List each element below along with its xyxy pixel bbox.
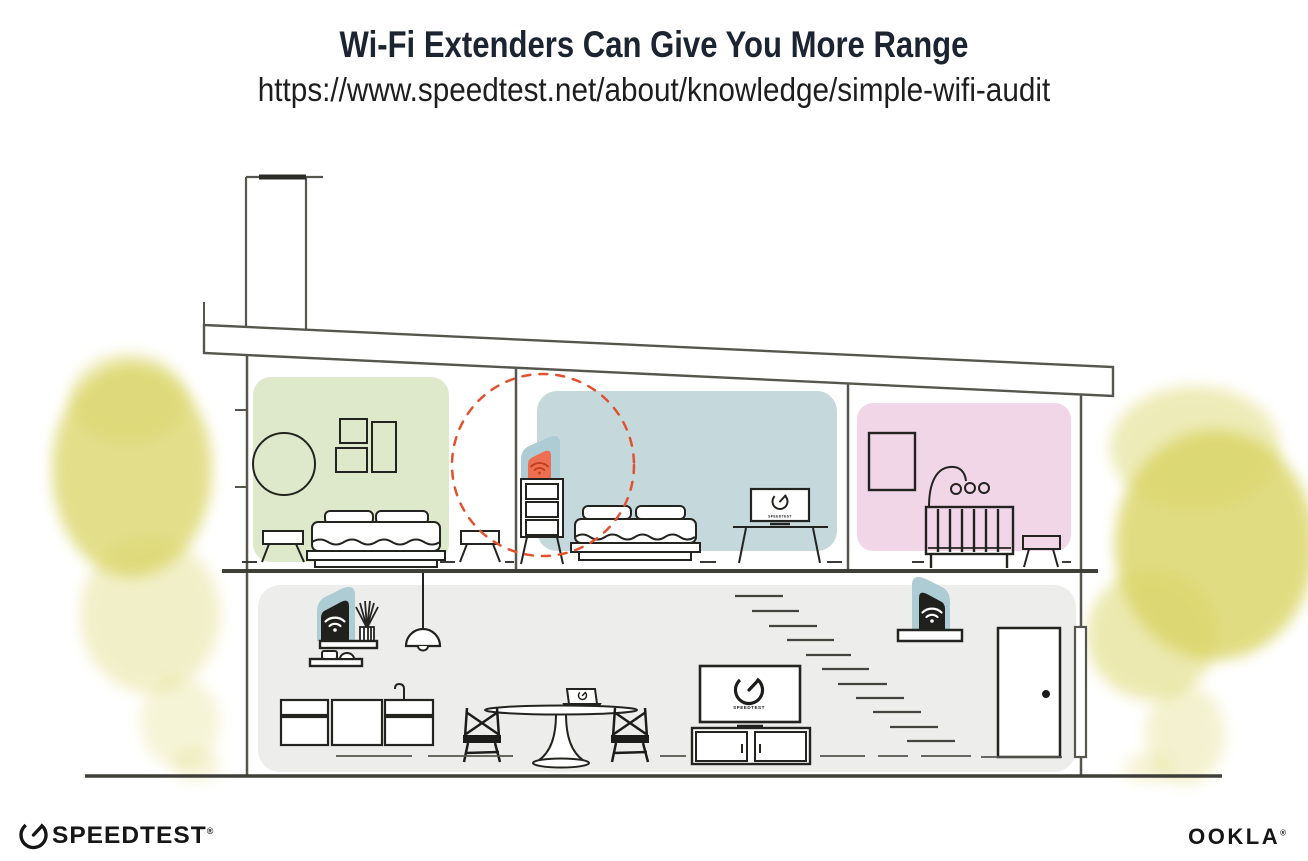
bed-left [307,511,445,567]
tv-living-area: SPEEDTEST [692,666,810,764]
speedtest-gauge-icon [16,818,51,853]
pillow [636,506,685,519]
wall-shelf-upper [320,641,377,648]
registered-mark: ® [1280,829,1286,838]
speedtest-label: SPEEDTEST [768,515,792,519]
wall-shelf-lower [310,659,362,666]
table-base [533,759,589,768]
pillow [583,506,631,519]
bed-base-2 [315,560,437,567]
drawer [526,520,558,535]
speedtest-logo: SPEEDTEST® [52,822,214,850]
downspout [1075,627,1086,757]
speedtest-wordmark: SPEEDTEST [52,822,207,849]
nightstand-right [460,531,500,562]
watercolor-tree-right [1087,386,1308,785]
bed-base-2 [579,552,691,560]
ookla-wordmark: OOKLA [1188,824,1280,849]
bed-base [571,543,700,552]
tv-screen [700,666,800,722]
registered-mark: ® [207,826,215,836]
watercolor-tree-left [52,353,220,781]
drawer [526,502,558,517]
ookla-logo: OOKLA® [1188,824,1286,850]
door-knob [1042,690,1050,698]
extender-shelf [898,630,962,641]
speedtest-label: SPEEDTEST [733,705,765,710]
drawer [526,484,558,499]
mattress [312,522,440,551]
bed-middle [571,506,700,560]
room-wash-nursery [857,403,1071,551]
bed-base [307,551,445,560]
nursery-stool [1023,536,1060,567]
chimney [246,177,323,337]
house-illustration: SPEEDTEST [0,0,1308,861]
media-console [692,728,810,764]
shelf-bowl [340,653,354,659]
front-door [998,628,1060,757]
shelf-cup [322,651,337,659]
infographic-page: Wi-Fi Extenders Can Give You More Range … [0,0,1308,861]
